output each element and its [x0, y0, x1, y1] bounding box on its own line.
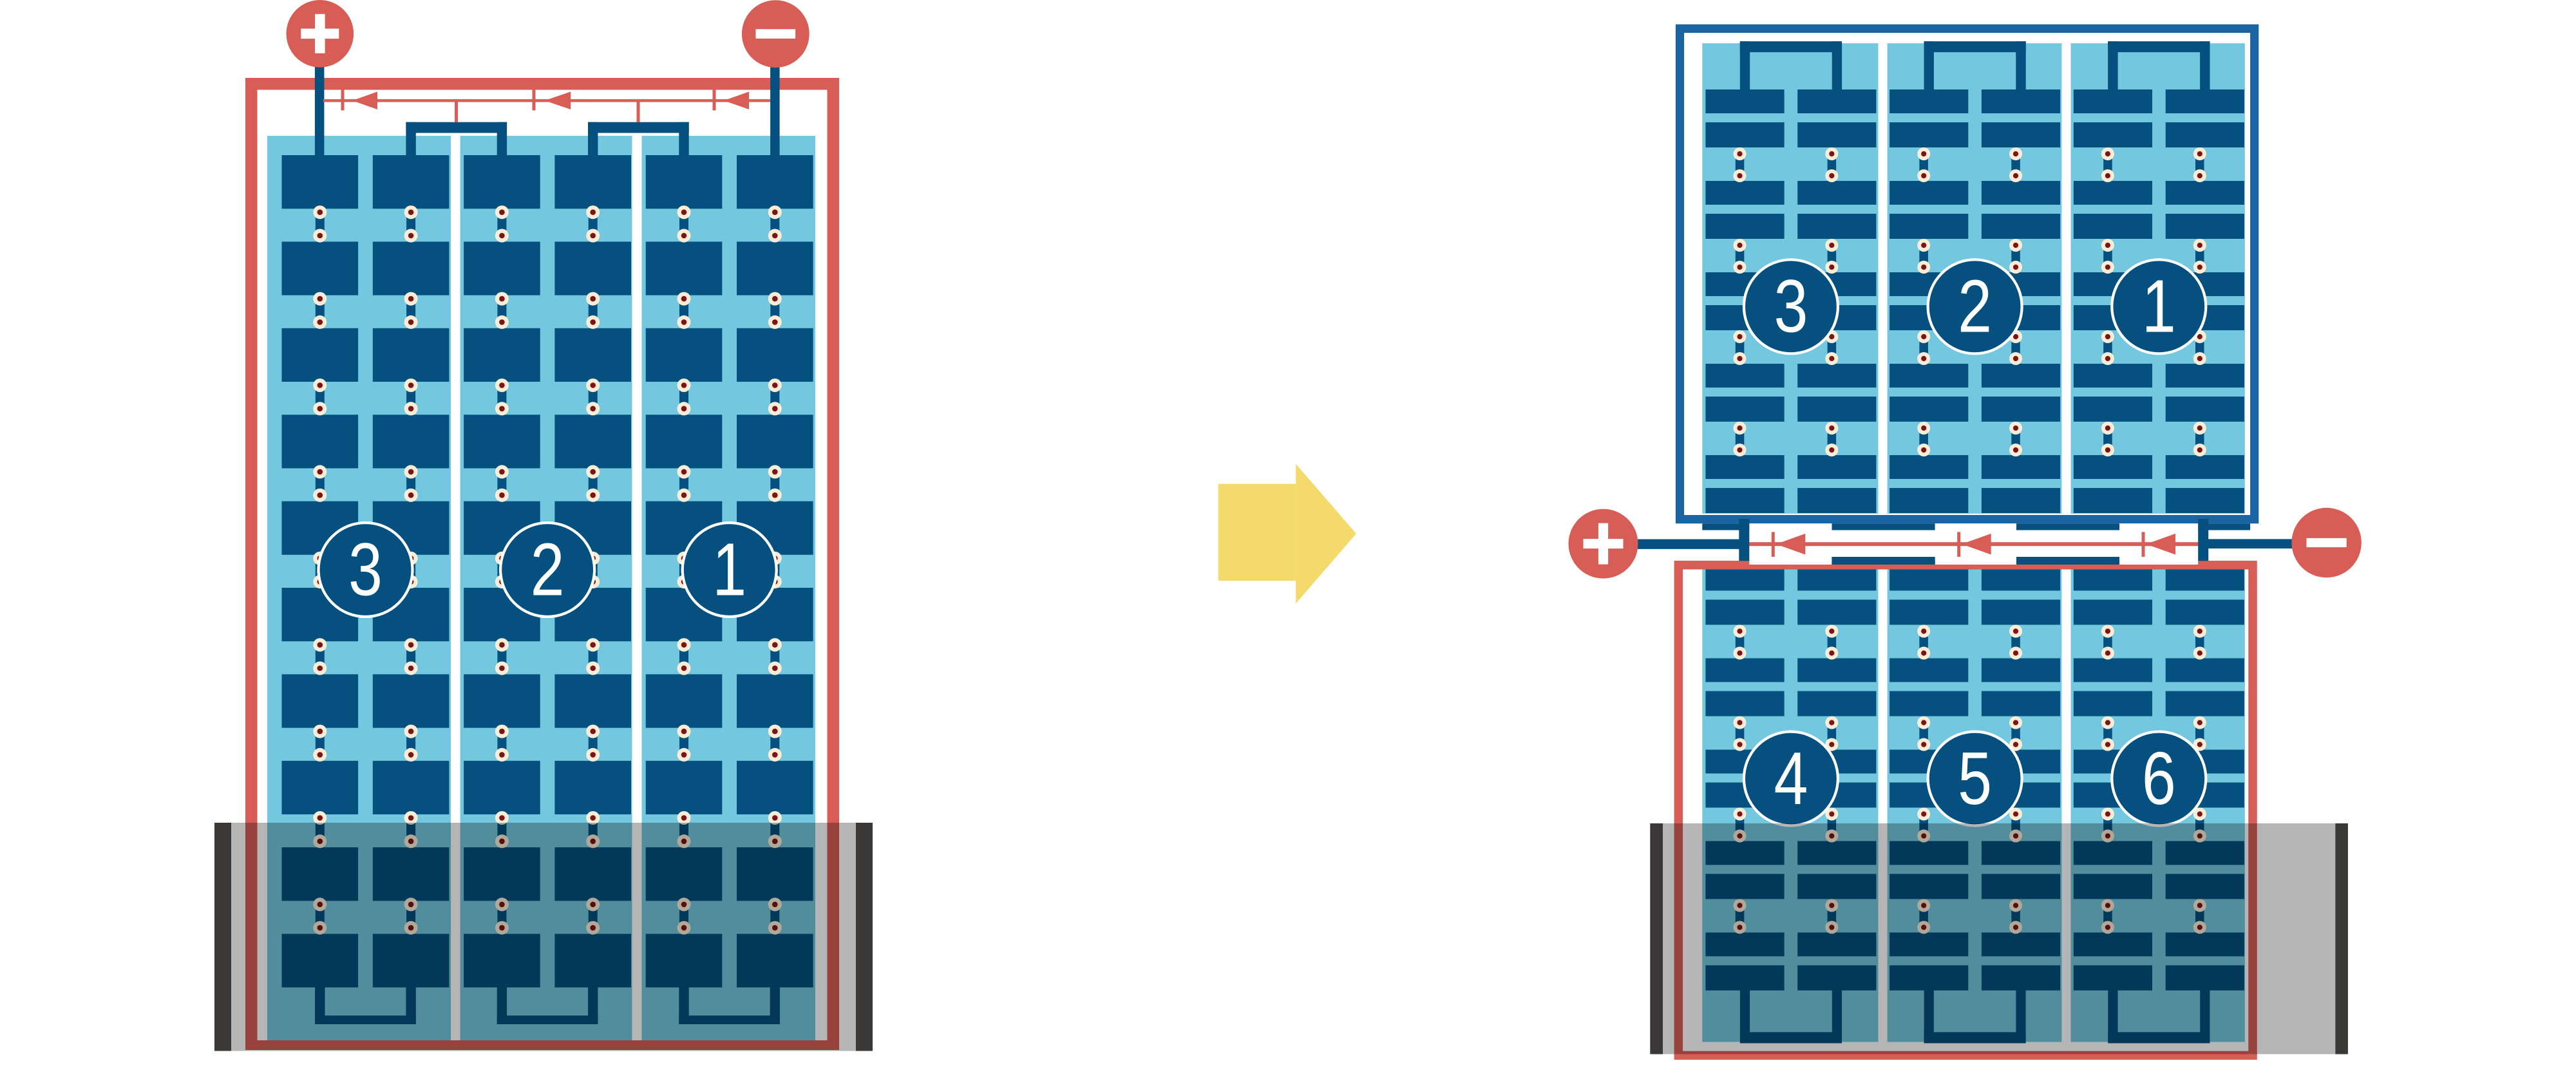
svg-text:3: 3: [1774, 265, 1808, 348]
svg-text:2: 2: [531, 528, 565, 611]
svg-text:1: 1: [2142, 265, 2176, 348]
svg-text:3: 3: [348, 528, 383, 611]
svg-text:2: 2: [1958, 265, 1992, 348]
svg-text:5: 5: [1958, 737, 1992, 820]
svg-text:6: 6: [2142, 737, 2176, 820]
svg-text:4: 4: [1774, 737, 1808, 820]
svg-text:1: 1: [712, 528, 746, 611]
